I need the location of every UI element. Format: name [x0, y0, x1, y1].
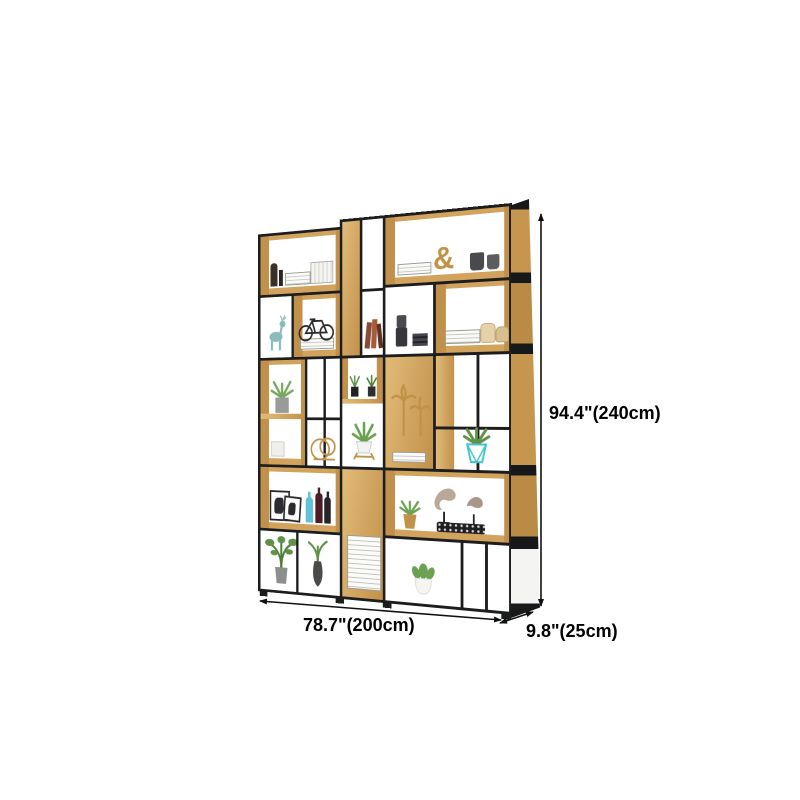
- magazine-stack: [445, 329, 480, 344]
- cream-vase: [496, 326, 510, 342]
- open-cell-canisters: [383, 282, 436, 358]
- dark-canister: [397, 315, 407, 328]
- window-rail: [307, 418, 339, 421]
- mini-potted-plant: [365, 371, 379, 399]
- grey-pot-succulent: [268, 375, 296, 415]
- dark-book-stack: [413, 333, 428, 346]
- dark-vase-plant: [306, 537, 330, 590]
- window-cell-rings: [305, 356, 342, 469]
- gold-palm-ornaments: [391, 372, 430, 439]
- white-book-stack: [285, 271, 310, 285]
- window-cell-teal-pot: [433, 351, 512, 474]
- shelf-side-panel: [511, 199, 540, 618]
- compartment-vases-box: [433, 277, 512, 356]
- open-cell-red-books: [360, 288, 386, 358]
- picture-frame: [283, 495, 302, 522]
- upright-white-books: [311, 261, 334, 284]
- compartment-tall-left-box: [258, 357, 307, 468]
- open-cell-bottom-right: [383, 535, 512, 615]
- compartment-mini-shelf: [340, 355, 386, 471]
- dark-cup: [487, 254, 499, 270]
- frame-divider: [461, 543, 464, 608]
- shelf-foot: [336, 598, 344, 603]
- wood-lining: [436, 356, 454, 470]
- mini-potted-plant: [348, 371, 361, 399]
- compartment-driftwood-box: [383, 467, 512, 546]
- shelf-foot: [260, 591, 268, 596]
- blue-bottle: [306, 497, 313, 523]
- driftwood-art: [431, 482, 458, 526]
- small-white-pot: [271, 441, 284, 456]
- wood-panel-palms: [383, 353, 436, 472]
- wood-panel-bottom-middle: [340, 466, 386, 603]
- shelf-foot: [383, 603, 392, 609]
- compartment-frames-bottles: [258, 464, 342, 535]
- dark-figurine-small: [279, 270, 283, 286]
- gold-wire-rings: [310, 430, 338, 462]
- dark-canister: [396, 327, 407, 346]
- wine-bottle: [315, 493, 322, 523]
- compartment-top-left-box: [258, 227, 342, 298]
- product-dimension-image: &: [0, 0, 800, 800]
- compartment-top-right-box: &: [383, 203, 512, 288]
- height-dimension-label: 94.4"(240cm): [549, 403, 661, 424]
- studded-ornament: [437, 522, 485, 534]
- bicycle-model: [298, 313, 335, 342]
- white-book-stack: [392, 452, 426, 463]
- bookshelf: &: [258, 203, 512, 620]
- wine-bottle: [324, 497, 331, 524]
- frame-divider: [296, 533, 298, 593]
- ampersand-ornament: &: [433, 242, 454, 275]
- white-pot-succulent: [408, 557, 438, 600]
- dark-cup: [470, 252, 484, 271]
- teal-deer-figurine: [265, 314, 290, 352]
- wood-shelf-divider: [342, 399, 383, 404]
- depth-dimension-label: 9.8"(25cm): [526, 621, 618, 642]
- open-cell-deer: [258, 293, 294, 360]
- gold-pot-succulent: [396, 493, 424, 531]
- width-dimension-label: 78.7"(200cm): [303, 615, 415, 636]
- open-cell-top-middle: [360, 215, 386, 292]
- monstera-plant: [265, 532, 298, 586]
- white-book-stack: [398, 262, 432, 276]
- cream-vase: [480, 323, 495, 343]
- teal-geometric-pot-plant: [460, 421, 494, 465]
- compartment-bicycle-box: [291, 290, 342, 360]
- dark-figurine: [270, 263, 277, 287]
- magazine-stack: [347, 535, 381, 592]
- open-cell-bottom-left: [258, 528, 342, 599]
- frame-divider: [485, 544, 488, 609]
- aloe-plant-white-pot: [349, 416, 379, 461]
- shelf-foot: [501, 614, 511, 620]
